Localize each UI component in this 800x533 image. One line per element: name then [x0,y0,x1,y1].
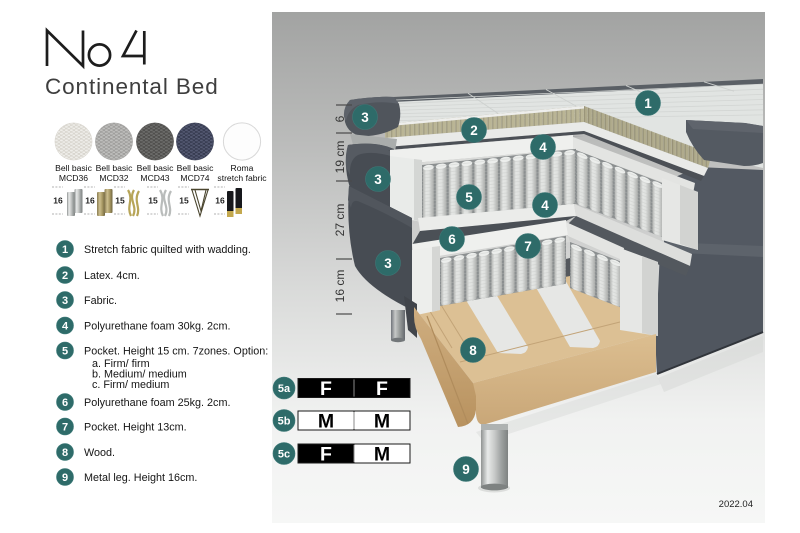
svg-text:Pocket. Height 15 cm. 7zones.: Pocket. Height 15 cm. 7zones. Option: [84,346,268,358]
svg-text:2: 2 [470,123,478,138]
svg-text:Polyurethane foam 25kg. 2cm.: Polyurethane foam 25kg. 2cm. [84,397,230,409]
svg-text:MCD74: MCD74 [180,173,209,183]
svg-text:F: F [376,378,388,400]
svg-text:c. Firm/ medium: c. Firm/ medium [92,379,169,391]
svg-text:16: 16 [85,196,95,206]
svg-text:5b: 5b [278,416,291,428]
svg-text:MCD32: MCD32 [99,173,128,183]
svg-text:15: 15 [115,196,125,206]
svg-text:16: 16 [53,196,63,206]
svg-text:1: 1 [62,244,68,256]
svg-text:19 cm: 19 cm [333,141,347,174]
svg-text:9: 9 [62,472,68,484]
svg-text:5: 5 [465,190,473,205]
svg-text:15: 15 [179,196,189,206]
svg-text:4: 4 [539,140,547,155]
svg-text:Fabric.: Fabric. [84,295,117,307]
svg-text:16: 16 [215,196,225,206]
svg-text:6: 6 [333,115,347,122]
svg-text:2: 2 [62,270,68,282]
svg-text:15: 15 [148,196,158,206]
svg-text:MCD36: MCD36 [59,173,88,183]
svg-text:6: 6 [448,232,456,247]
svg-text:Bell basic: Bell basic [177,163,214,173]
svg-text:7: 7 [62,422,68,434]
svg-text:3: 3 [384,256,392,271]
svg-text:4: 4 [62,321,69,333]
svg-text:9: 9 [462,462,470,477]
svg-text:MCD43: MCD43 [140,173,169,183]
svg-text:Latex. 4cm.: Latex. 4cm. [84,270,140,282]
svg-text:stretch fabric: stretch fabric [217,173,267,183]
svg-text:Continental Bed: Continental Bed [45,74,219,99]
svg-text:Pocket. Height 13cm.: Pocket. Height 13cm. [84,422,187,434]
svg-text:3: 3 [374,172,382,187]
svg-text:1: 1 [644,96,652,111]
svg-text:7: 7 [524,239,532,254]
svg-text:5c: 5c [278,449,290,461]
svg-text:Stretch fabric quilted with wa: Stretch fabric quilted with wadding. [84,244,251,256]
svg-text:4: 4 [541,198,549,213]
svg-text:2022.04: 2022.04 [719,499,753,510]
svg-text:Roma: Roma [231,163,254,173]
svg-text:8: 8 [469,343,477,358]
svg-text:5a: 5a [278,383,291,395]
svg-text:F: F [320,378,332,400]
svg-text:Bell basic: Bell basic [137,163,174,173]
svg-text:F: F [320,444,332,466]
svg-text:Polyurethane foam 30kg. 2cm.: Polyurethane foam 30kg. 2cm. [84,321,230,333]
svg-text:Metal leg. Height 16cm.: Metal leg. Height 16cm. [84,472,197,484]
svg-text:Wood.: Wood. [84,447,115,459]
svg-text:3: 3 [62,295,68,307]
svg-text:3: 3 [361,110,369,125]
svg-text:Bell basic: Bell basic [96,163,133,173]
svg-text:5: 5 [62,346,68,358]
svg-text:M: M [374,444,390,466]
svg-text:Bell basic: Bell basic [55,163,92,173]
svg-text:6: 6 [62,397,68,409]
svg-text:27 cm: 27 cm [333,204,347,237]
svg-text:8: 8 [62,447,68,459]
svg-text:M: M [374,411,390,433]
svg-text:M: M [318,411,334,433]
svg-text:16 cm: 16 cm [333,270,347,303]
